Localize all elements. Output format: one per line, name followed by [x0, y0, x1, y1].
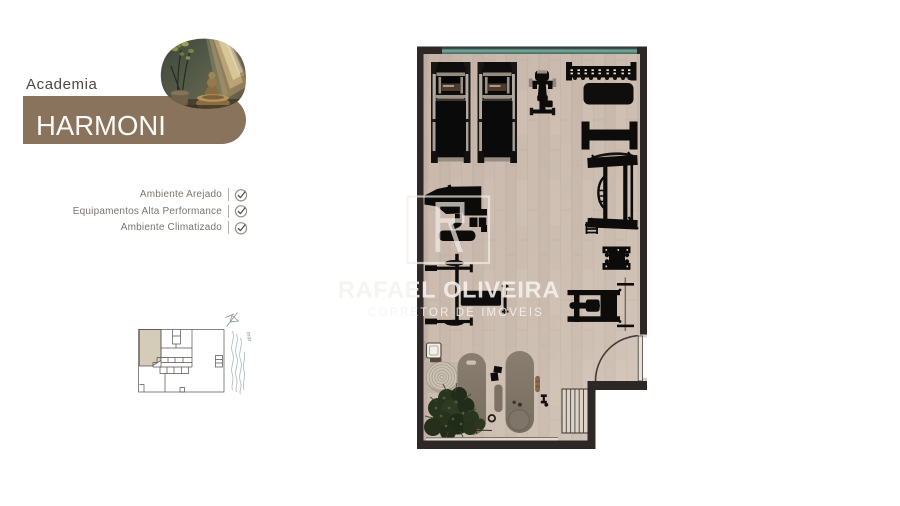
svg-text:CORRETOR DE IMÓVEIS: CORRETOR DE IMÓVEIS	[368, 306, 544, 319]
svg-text:RAFAEL OLIVEIRA: RAFAEL OLIVEIRA	[338, 277, 560, 303]
svg-text:mar: mar	[245, 331, 252, 343]
